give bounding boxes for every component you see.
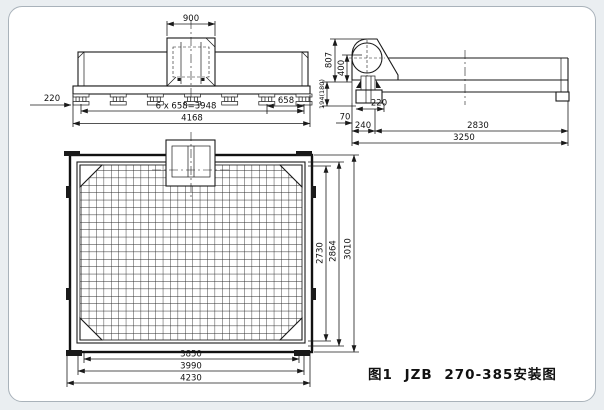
dim-frame-length: 3990 — [180, 362, 202, 372]
dim-side-total-length: 3250 — [453, 133, 475, 143]
dim-exciter-height: 400 — [337, 60, 347, 76]
figure-caption: 图1 JZB 270-385安装图 — [368, 366, 557, 383]
dim-plan-total-length: 4230 — [180, 374, 202, 384]
dim-total-height: 807 — [325, 52, 335, 68]
dim-frame-width: 2864 — [329, 240, 339, 262]
side-right-foot — [556, 92, 569, 101]
plan-view: 2730 2864 3010 3850 3990 4230 — [64, 132, 359, 387]
dim-left-offset: 220 — [44, 94, 60, 104]
dim-support-span: 2830 — [467, 121, 489, 131]
dim-seat-width: 900 — [183, 14, 199, 24]
dim-foot-offset: 240 — [355, 121, 371, 131]
side-body — [349, 39, 569, 105]
dim-mesh-width: 2730 — [316, 242, 326, 264]
dim-end-pitch: 658 — [278, 96, 294, 106]
front-body — [73, 20, 312, 105]
dim-foot-pitch: 6 x 658=3948 — [156, 102, 217, 112]
dim-base-height: 194(180) — [318, 79, 326, 109]
dim-mesh-length: 3850 — [180, 350, 202, 360]
plan-body — [64, 132, 316, 356]
dim-front-total-length: 4168 — [181, 114, 203, 124]
front-view: 900 220 658 6 x 658=3948 4168 — [30, 14, 312, 127]
dim-total-width: 3010 — [344, 238, 354, 260]
dim-edge-gap: 70 — [340, 113, 351, 123]
dim-foot-width: 220 — [371, 99, 387, 109]
installation-drawing: 900 220 658 6 x 658=3948 4168 — [0, 0, 604, 410]
side-view: 807 400 194(180) 220 70 240 2830 — [318, 39, 569, 146]
